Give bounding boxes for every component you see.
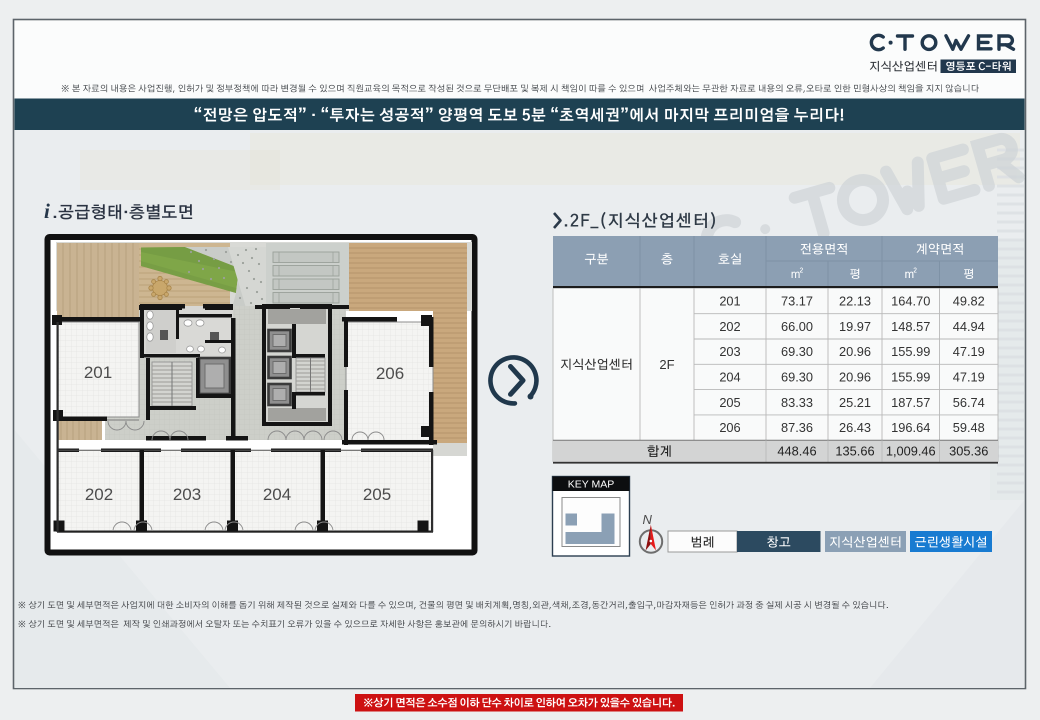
svg-text:448.46: 448.46	[777, 444, 816, 459]
svg-text:205: 205	[719, 395, 740, 410]
svg-text:1,009.46: 1,009.46	[886, 444, 936, 459]
svg-text:25.21: 25.21	[839, 395, 871, 410]
svg-text:155.99: 155.99	[891, 370, 930, 385]
svg-text:202: 202	[85, 485, 113, 504]
svg-text:203: 203	[719, 344, 740, 359]
svg-text:66.00: 66.00	[781, 319, 813, 334]
svg-text:KEY MAP: KEY MAP	[568, 479, 615, 491]
svg-text:206: 206	[719, 420, 740, 435]
svg-text:73.17: 73.17	[781, 294, 813, 309]
svg-text:201: 201	[719, 294, 740, 309]
svg-text:204: 204	[719, 370, 740, 385]
svg-text:19.97: 19.97	[839, 319, 871, 334]
svg-text:26.43: 26.43	[839, 420, 871, 435]
svg-text:135.66: 135.66	[835, 444, 874, 459]
svg-text:56.74: 56.74	[953, 395, 985, 410]
svg-text:204: 204	[263, 485, 291, 504]
svg-text:148.57: 148.57	[891, 319, 930, 334]
svg-text:N: N	[643, 512, 653, 527]
svg-text:69.30: 69.30	[781, 344, 813, 359]
svg-text:2F: 2F	[659, 357, 674, 372]
svg-text:47.19: 47.19	[953, 344, 985, 359]
svg-text:201: 201	[84, 363, 112, 382]
svg-text:59.48: 59.48	[953, 420, 985, 435]
svg-text:20.96: 20.96	[839, 344, 871, 359]
svg-text:20.96: 20.96	[839, 370, 871, 385]
svg-text:22.13: 22.13	[839, 294, 871, 309]
svg-text:202: 202	[719, 319, 740, 334]
svg-text:187.57: 187.57	[891, 395, 930, 410]
svg-text:87.36: 87.36	[781, 420, 813, 435]
svg-text:305.36: 305.36	[949, 444, 988, 459]
svg-text:205: 205	[363, 485, 391, 504]
svg-text:155.99: 155.99	[891, 344, 930, 359]
svg-text:203: 203	[173, 485, 201, 504]
svg-text:47.19: 47.19	[953, 370, 985, 385]
svg-text:206: 206	[376, 364, 404, 383]
svg-text:49.82: 49.82	[953, 294, 985, 309]
svg-text:44.94: 44.94	[953, 319, 985, 334]
svg-text:69.30: 69.30	[781, 370, 813, 385]
svg-text:196.64: 196.64	[891, 420, 930, 435]
svg-text:i: i	[44, 199, 50, 223]
svg-text:83.33: 83.33	[781, 395, 813, 410]
svg-text:164.70: 164.70	[891, 294, 930, 309]
